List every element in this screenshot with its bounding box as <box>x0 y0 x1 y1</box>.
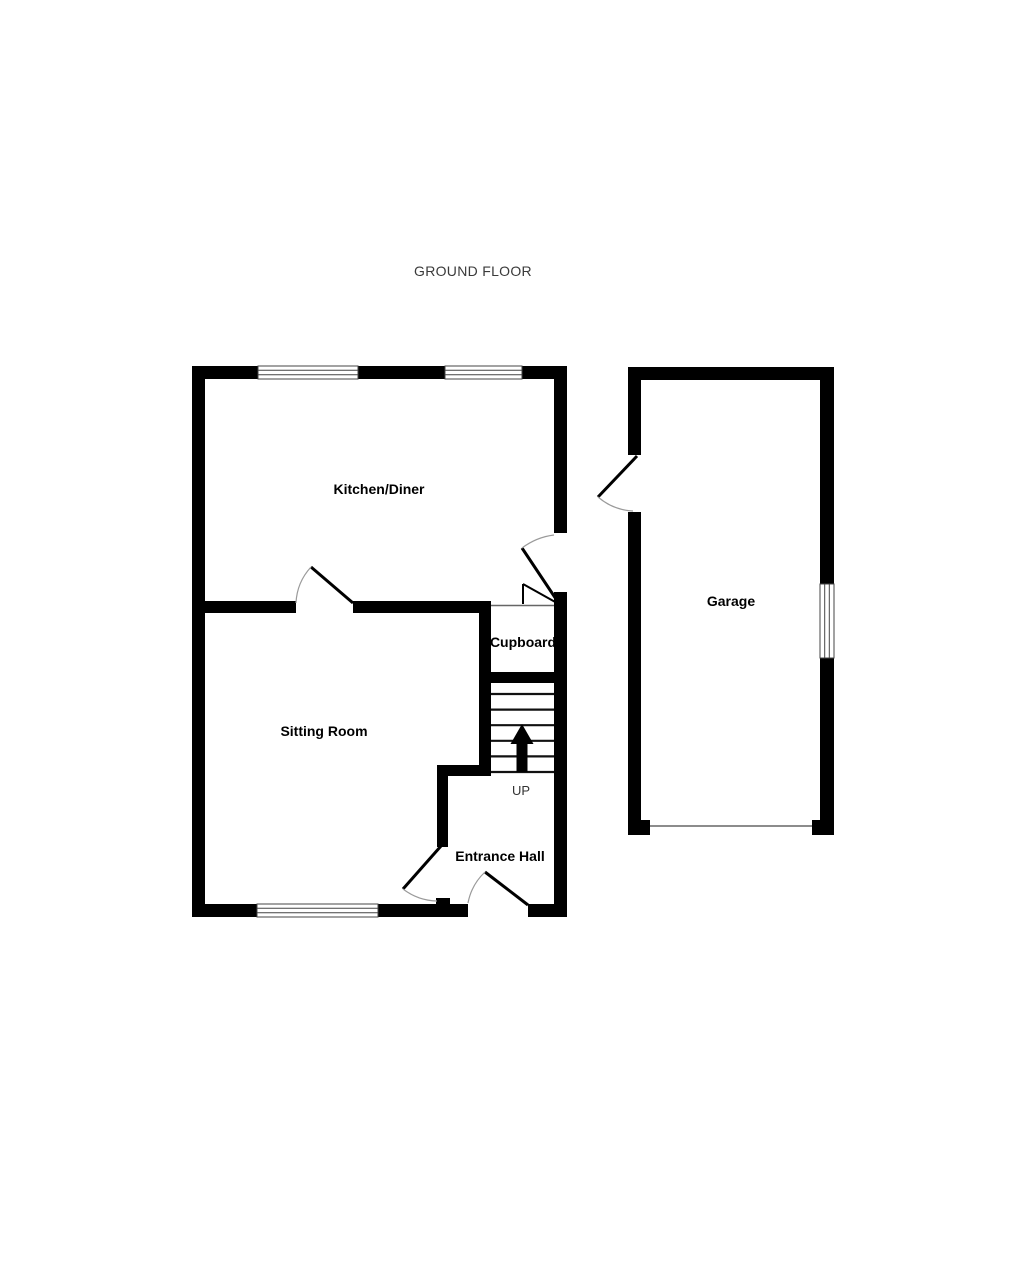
door-leaf <box>403 846 441 889</box>
door-leaf <box>485 872 528 905</box>
garage-wall-left-upper <box>628 367 641 455</box>
window-frame <box>445 366 522 379</box>
wall-divider-right <box>353 601 491 613</box>
garage-wall-left-lower <box>628 512 641 835</box>
door-swing-arc <box>468 872 485 903</box>
garage-door-post-left <box>628 820 650 835</box>
staircase: UP <box>491 694 554 798</box>
door-leaf <box>311 567 353 603</box>
garage-wall-top <box>628 367 834 380</box>
floor-plan-drawing: GROUND FLOOR <box>0 0 1024 1263</box>
door-kitchen-sitting <box>296 567 353 603</box>
door-kitchen-side <box>522 535 558 602</box>
door-leaf <box>598 456 637 497</box>
wall-entrance-partition <box>437 765 448 847</box>
floor-plan-page: GROUND FLOOR <box>0 0 1024 1263</box>
window-bottom <box>257 904 378 917</box>
door-front-entrance <box>468 872 528 905</box>
door-sitting-entrance <box>403 846 441 901</box>
wall-divider-left <box>205 601 296 613</box>
window-top-2 <box>445 366 522 379</box>
door-swing-arc <box>522 535 554 548</box>
garage-door-post-right <box>812 820 834 835</box>
garage-wall-right-upper <box>820 367 834 584</box>
window-frame <box>820 584 834 658</box>
wall-left <box>192 366 205 917</box>
room-label-cupboard: Cupboard <box>490 634 556 650</box>
window-frame <box>258 366 358 379</box>
wall-stairs-left <box>479 603 491 776</box>
window-top-1 <box>258 366 358 379</box>
wall-right-upper <box>554 366 567 533</box>
wall-top-middle <box>358 366 445 379</box>
stairs-up-label: UP <box>512 783 530 798</box>
plan-title: GROUND FLOOR <box>414 263 532 279</box>
garage-wall-right-lower <box>820 658 834 835</box>
wall-bottom-left <box>192 904 257 917</box>
stairs-up-arrow-icon <box>511 724 534 772</box>
wall-cupboard-separator <box>491 672 554 683</box>
room-label-entrance-hall: Entrance Hall <box>455 848 544 864</box>
wall-door-nub <box>436 898 450 905</box>
door-garage-side <box>598 456 637 511</box>
door-swing-arc <box>296 567 311 603</box>
window-frame <box>257 904 378 917</box>
room-label-sitting-room: Sitting Room <box>280 723 367 739</box>
wall-bottom-middle <box>378 904 468 917</box>
garage-window-right <box>820 584 834 658</box>
room-label-kitchen-diner: Kitchen/Diner <box>333 481 425 497</box>
room-label-garage: Garage <box>707 593 755 609</box>
door-swing-arc <box>403 889 437 901</box>
door-swing-arc <box>598 497 633 511</box>
